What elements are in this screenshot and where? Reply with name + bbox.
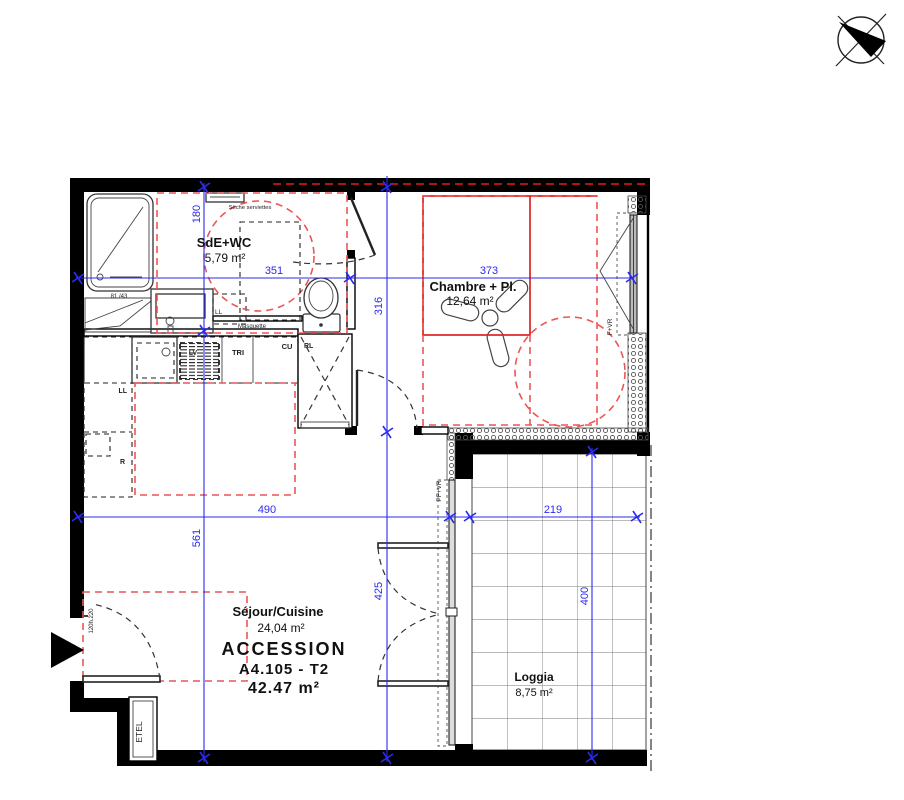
sorting-label: TRI (232, 348, 244, 357)
dim-sde-width: 351 (265, 265, 283, 277)
entry-door-size-label: 120h.220 (89, 608, 95, 634)
dishwasher (180, 343, 219, 379)
dishwasher-label: LV (189, 350, 198, 357)
kitchen-cabinets (84, 337, 298, 497)
room-sde-area: 5,79 m² (205, 251, 246, 265)
room-sde-name: SdE+WC (197, 235, 252, 250)
entrance-arrow-icon (51, 632, 84, 668)
dim-sejour-depth: 561 (191, 529, 203, 547)
washer-kitchen-label: LL (118, 388, 127, 395)
masquette-label: Masquette (238, 324, 267, 330)
sde-door (293, 198, 375, 264)
room-chambre-name: Chambre + Pl. (429, 279, 516, 294)
room-sejour-area: 24,04 m² (257, 621, 304, 635)
dim-chambre-width: 373 (480, 265, 498, 277)
bay-window-label: PF+VR (436, 480, 443, 501)
room-chambre-area: 12,64 m² (446, 294, 493, 308)
shower-note-label: 81 /43 (111, 294, 128, 300)
dim-loggia-depth: 400 (579, 587, 591, 605)
title-total-area: 42.47 m² (248, 680, 320, 697)
room-loggia-name: Loggia (514, 670, 554, 684)
bedroom-window-label: F+VR (607, 318, 614, 335)
towel-radiator (206, 193, 244, 202)
bedroom-window (600, 213, 637, 335)
floor-plan-drawing: 351 373 490 219 180 561 316 425 400 SdE+… (0, 0, 904, 800)
fridge-label: R (120, 459, 125, 466)
towel-radiator-label: Sèche serviettes (229, 205, 272, 211)
dim-sejour-width: 490 (258, 504, 276, 516)
toilet (303, 278, 340, 332)
washer-sde-label: LL (215, 309, 223, 316)
room-loggia-area: 8,75 m² (515, 687, 553, 699)
utility-closet-label: ETEL (134, 721, 144, 743)
floor-plan-sheet: 351 373 490 219 180 561 316 425 400 SdE+… (0, 0, 904, 800)
dim-sde-depth: 180 (191, 205, 203, 223)
interior-walls (84, 192, 448, 435)
north-arrow-icon (836, 14, 886, 66)
title-lot: A4.105 - T2 (239, 661, 329, 678)
insulation-hatch (447, 196, 648, 480)
under-shower-unit (85, 298, 151, 332)
dim-bay-span: 425 (373, 582, 385, 600)
duct-label: RL (304, 343, 314, 350)
loggia-tile-floor (472, 454, 646, 750)
dim-loggia-width: 219 (544, 504, 562, 516)
title-block: ACCESSION A4.105 - T2 42.47 m² (221, 639, 346, 697)
title-program: ACCESSION (221, 639, 346, 659)
dim-chambre-depth: 316 (373, 297, 385, 315)
cooking-label: CU (282, 342, 293, 351)
room-sejour-name: Séjour/Cuisine (232, 604, 323, 619)
shower-tray (87, 194, 153, 291)
